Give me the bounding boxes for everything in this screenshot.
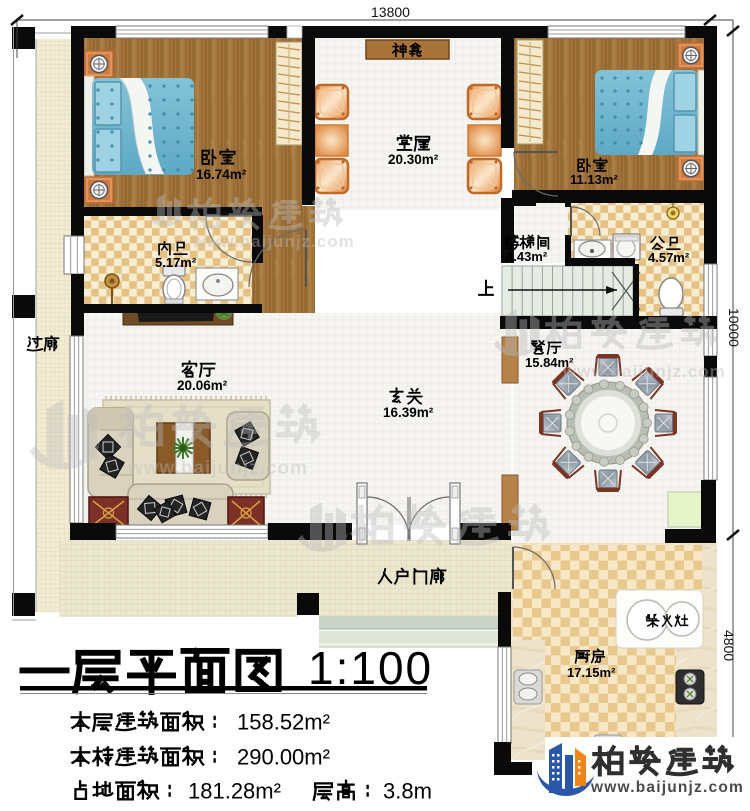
svg-text:4.43m²: 4.43m² <box>506 249 548 264</box>
svg-text:17.15m²: 17.15m² <box>567 665 616 680</box>
svg-text:13800: 13800 <box>371 4 410 20</box>
svg-text:www.baijunjz.com: www.baijunjz.com <box>191 232 355 251</box>
svg-text:www.baijunjz.com: www.baijunjz.com <box>562 362 726 381</box>
svg-text:4800: 4800 <box>721 630 737 661</box>
svg-text:15.84m²: 15.84m² <box>525 355 574 370</box>
svg-text:11.13m²: 11.13m² <box>570 172 618 187</box>
svg-text:16.39m²: 16.39m² <box>383 405 434 420</box>
svg-text:290.00m²: 290.00m² <box>237 745 330 770</box>
svg-text:10000: 10000 <box>726 308 742 347</box>
svg-text:181.28m²: 181.28m² <box>188 779 281 804</box>
svg-text:4.57m²: 4.57m² <box>648 250 690 265</box>
svg-text:www.baijunjz.com: www.baijunjz.com <box>590 779 744 796</box>
svg-text:www.baijunjz.com: www.baijunjz.com <box>127 458 308 479</box>
svg-text:20.06m²: 20.06m² <box>177 378 228 393</box>
svg-text:3.8m: 3.8m <box>383 779 432 804</box>
svg-text:16.74m²: 16.74m² <box>196 167 247 182</box>
svg-text:158.52m²: 158.52m² <box>237 710 330 735</box>
svg-text:20.30m²: 20.30m² <box>388 152 439 167</box>
svg-text:5.17m²: 5.17m² <box>155 255 197 270</box>
